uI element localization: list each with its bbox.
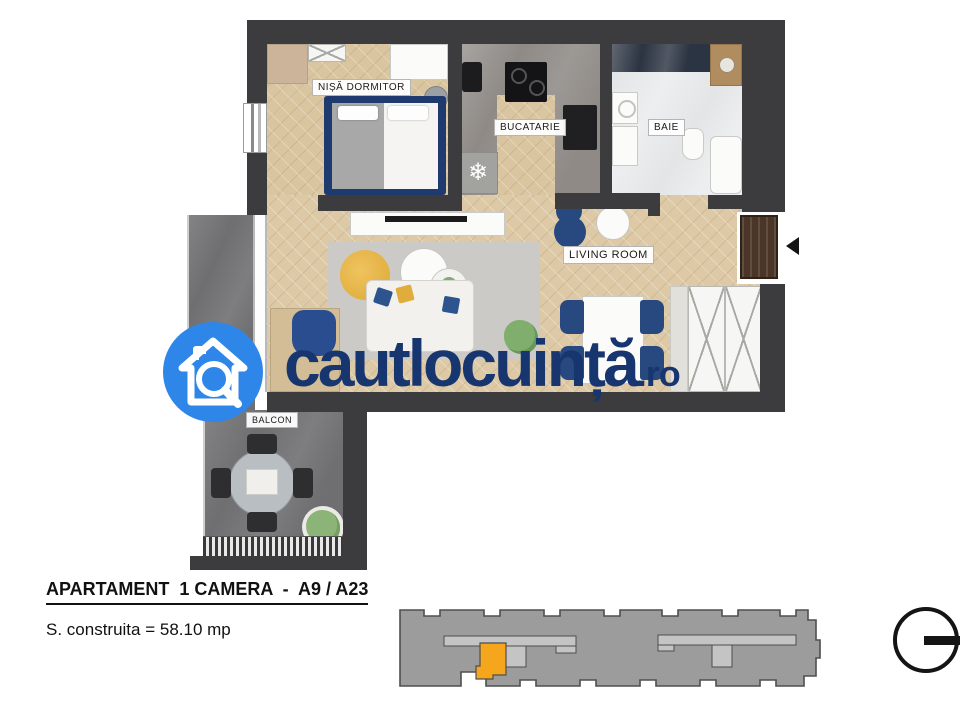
wall-bedroom-bottom [318,195,462,211]
balcony-chair [211,468,231,498]
wardrobe [688,286,762,392]
room-label-living: LIVING ROOM [563,246,654,264]
site-plan-building [400,610,820,686]
brand-logo [163,322,263,422]
balcony-table [229,450,295,516]
wall-right-lower [760,282,785,392]
wall-bath-bottom [555,193,660,209]
closet-icon [308,44,346,62]
bedroom-wardrobe [390,44,448,80]
balcony-chair [247,434,277,454]
wall-bedroom-kitchen [448,44,462,195]
pillow [388,106,428,120]
entrance-door [740,215,778,279]
floorplan-page: ❄ [0,0,960,720]
bath-marble-wall [612,44,712,72]
wall-bath-bottom-stub [648,193,660,216]
dining-chair [640,300,664,334]
bath-vanity [710,44,742,86]
cooktop [505,62,547,102]
fridge: ❄ [458,152,498,194]
washing-machine [612,92,638,124]
side-table [596,206,630,240]
kitchen-wood-path [497,95,555,195]
balcony-rug [203,536,343,558]
wall-balcony-right [343,412,367,570]
balcony-chair [247,512,277,532]
apartment-title: APARTAMENT 1 CAMERA - A9 / A23 [46,579,368,605]
fridge-snowflake-icon: ❄ [468,159,488,186]
toilet [682,128,704,160]
room-label-kitchen: BUCATARIE [494,119,566,136]
room-label-bedroom: NIȘĂ DORMITOR [312,79,411,96]
site-plan [396,602,826,692]
kitchen-appliance [563,105,597,150]
entrance-arrow-icon [786,237,799,255]
kitchen-sink [462,62,482,92]
wall-top [247,20,785,44]
bathtub [710,136,742,194]
compass-needle [924,636,960,645]
wall-bath-bottom-b [708,195,742,209]
tv [385,216,467,222]
bath-counter [612,126,638,166]
brand-tld: .ro [637,356,680,392]
site-plan-highlight-unit [476,643,506,679]
dresser [267,44,308,84]
built-area-text: S. construita = 58.10 mp [46,620,231,640]
balcony-chair [293,468,313,498]
stool [554,216,586,248]
brand-wordmark: cautlocuință.ro [284,330,680,396]
wall-kitchen-bath [600,44,612,195]
room-label-bathroom: BAIE [648,119,685,136]
wall-balcony-bottom [190,556,367,570]
pillow [338,106,378,120]
bed [324,96,446,195]
wall-right-top [742,20,785,212]
window-left [243,103,267,153]
brand-name: cautlocuință [284,330,637,396]
